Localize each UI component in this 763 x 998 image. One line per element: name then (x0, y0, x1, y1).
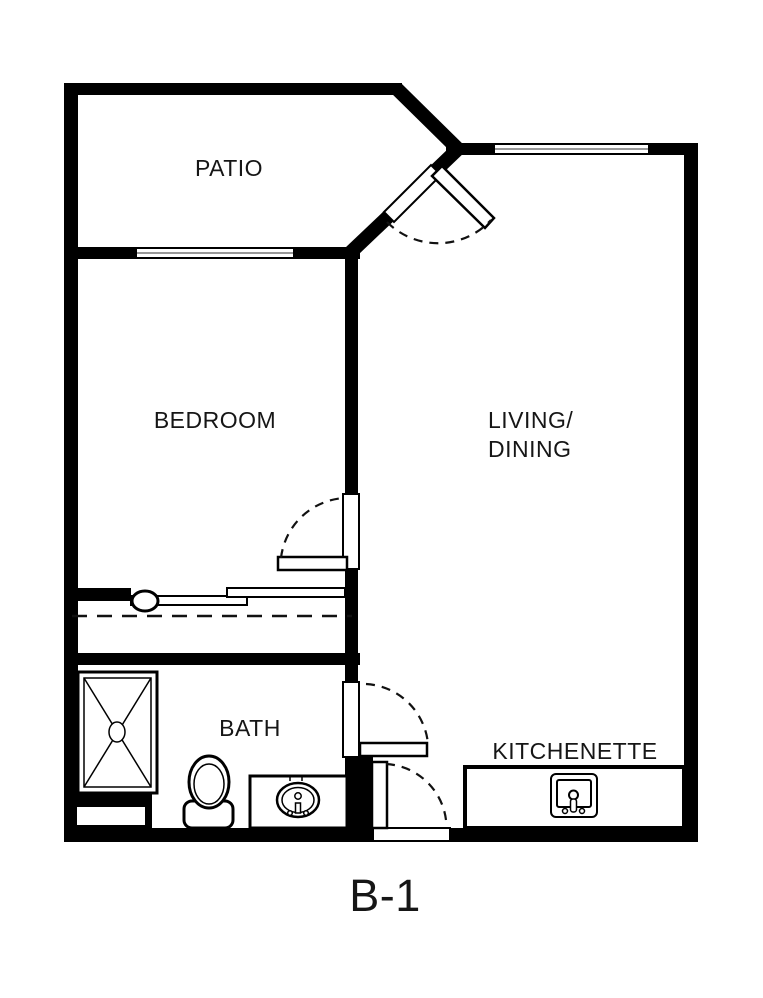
shower (78, 672, 157, 793)
floor-plan-page: PATIO BEDROOM LIVING/ DINING BATH KITCHE… (0, 0, 763, 998)
bath-sink-drain (295, 793, 301, 799)
bath-sink-faucet-handle-right (304, 811, 309, 816)
kitchenette-label: KITCHENETTE (492, 738, 657, 764)
bath-sink-faucet-handle-left (288, 811, 293, 816)
kitchenette-faucet-handle-right (580, 809, 585, 814)
bath-door-opening (343, 682, 359, 757)
left-wall (64, 83, 78, 842)
bath-door-leaf (360, 743, 427, 756)
kitchenette-faucet-head (569, 791, 578, 800)
entry-door-threshold (373, 828, 450, 841)
unit-label: B-1 (349, 870, 421, 921)
toilet (184, 756, 233, 828)
bedroom-door-leaf (278, 557, 347, 570)
entry-door-leaf (372, 762, 387, 828)
right-wall (684, 143, 698, 842)
floor-plan-drawing: PATIO BEDROOM LIVING/ DINING BATH KITCHE… (0, 0, 763, 998)
bedroom-label: BEDROOM (154, 407, 276, 433)
closet-sliding-panel-back (227, 588, 345, 597)
kitchenette-faucet-stem (571, 799, 577, 812)
bottom-wall-right (450, 828, 698, 842)
living-label-line2: DINING (488, 436, 572, 462)
closet-door-knob (132, 591, 158, 611)
living-label-line1: LIVING/ (488, 407, 573, 433)
closet-wall-stub (64, 588, 131, 601)
divider-wall-lower (345, 757, 373, 842)
top-wall (64, 83, 402, 95)
kitchenette-faucet-handle-left (563, 809, 568, 814)
patio-bedroom-wall-left (64, 247, 137, 259)
patio-window (137, 247, 293, 259)
bath-sink-vanity (250, 776, 347, 828)
living-window (495, 143, 648, 155)
bath-label: BATH (219, 715, 281, 741)
closet-bath-wall (64, 653, 360, 665)
bath-sink-faucet-stem (296, 803, 301, 813)
divider-wall-upper (345, 247, 358, 495)
patio-label: PATIO (195, 155, 263, 181)
plumbing-block-niche (77, 807, 145, 825)
kitchenette-counter (465, 767, 684, 828)
shower-drain (109, 722, 125, 742)
